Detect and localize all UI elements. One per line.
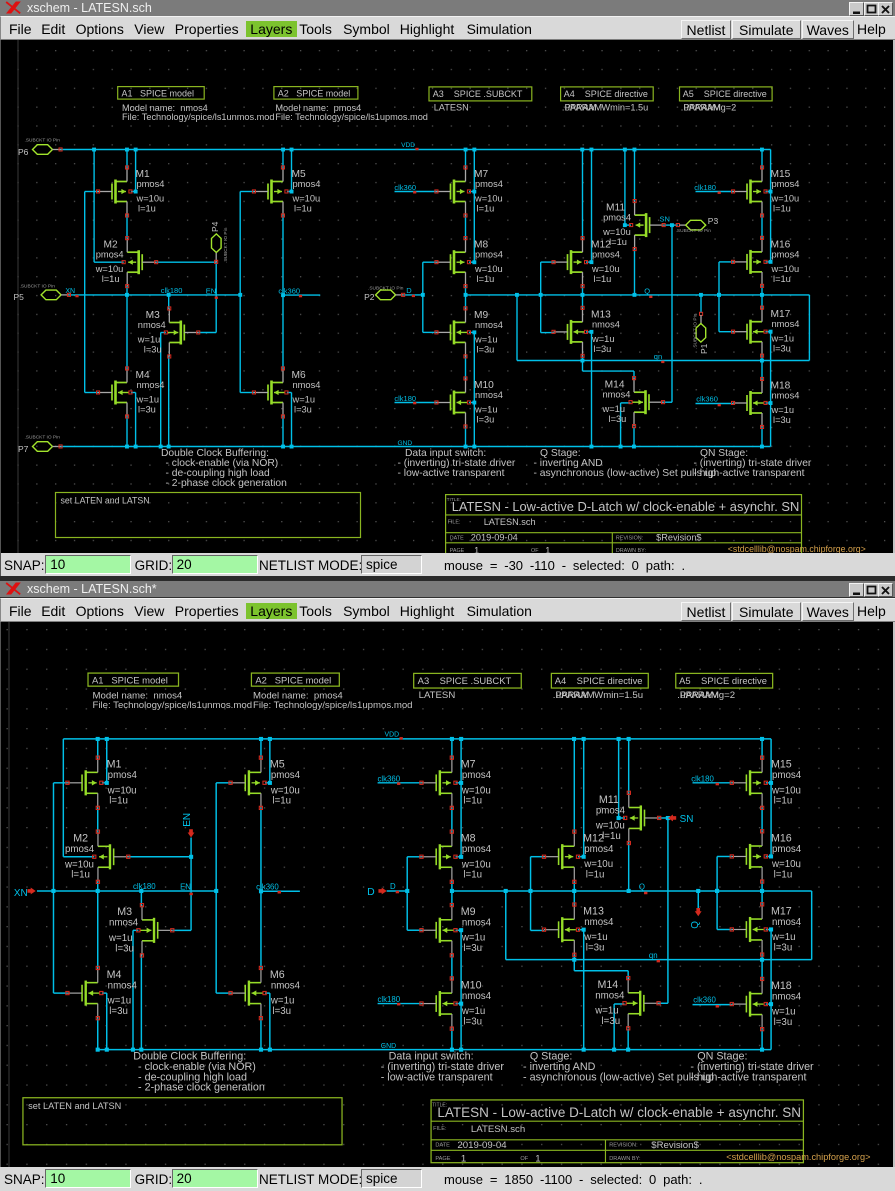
svg-text:Wmin=1.5u: Wmin=1.5u xyxy=(594,690,643,701)
svg-text:A4 SPICE directive: A4 SPICE directive xyxy=(564,89,648,99)
svg-text:l=3u: l=3u xyxy=(773,415,791,425)
svg-text:pmos4: pmos4 xyxy=(772,249,800,259)
svg-text:w=10u: w=10u xyxy=(595,820,625,831)
svg-text:l=1u: l=1u xyxy=(594,274,612,284)
svg-text:uPARAM: uPARAM xyxy=(565,103,602,113)
svg-text:.SUBCKT IO Pin: .SUBCKT IO Pin xyxy=(25,435,61,441)
svg-text:clk360: clk360 xyxy=(256,882,279,891)
svg-text:nmos4: nmos4 xyxy=(772,391,800,401)
svg-text:clk180: clk180 xyxy=(394,394,416,403)
svg-text:M8: M8 xyxy=(461,833,476,845)
svg-text:l=1u: l=1u xyxy=(463,796,482,807)
svg-text:M12: M12 xyxy=(583,833,604,845)
svg-text:File: Technology/spice/ls1upmo: File: Technology/spice/ls1upmos.mod xyxy=(275,112,428,122)
svg-text:DRAWN BY:: DRAWN BY: xyxy=(609,1156,641,1162)
svg-text:<stdcelllib@nospam.chipforge.o: <stdcelllib@nospam.chipforge.org> xyxy=(726,1152,870,1162)
svg-text:w=1u: w=1u xyxy=(474,405,497,415)
svg-text:A1 SPICE model: A1 SPICE model xyxy=(122,89,195,99)
svg-text:- high-active transparent: - high-active transparent xyxy=(690,1071,806,1083)
svg-text:.SUBCKT IO Pin: .SUBCKT IO Pin xyxy=(676,228,712,234)
svg-text:M7: M7 xyxy=(461,759,476,771)
svg-text:w=1u: w=1u xyxy=(771,405,794,415)
svg-text:l=1u: l=1u xyxy=(773,204,791,214)
svg-text:w=10u: w=10u xyxy=(270,785,300,796)
svg-text:l=3u: l=3u xyxy=(294,405,312,415)
svg-text:w=1u: w=1u xyxy=(461,1006,486,1017)
svg-text:M11: M11 xyxy=(599,794,619,806)
svg-text:.SUBCKT IO Pin: .SUBCKT IO Pin xyxy=(20,284,56,290)
svg-text:D: D xyxy=(367,887,375,898)
svg-text:M10: M10 xyxy=(461,979,482,991)
svg-text:M13: M13 xyxy=(583,906,604,918)
svg-text:l=3u: l=3u xyxy=(773,344,791,354)
svg-text:M1: M1 xyxy=(107,759,122,771)
svg-text:Q: Q xyxy=(644,287,650,296)
svg-text:l=1u: l=1u xyxy=(477,204,495,214)
svg-text:l=3u: l=3u xyxy=(115,943,134,954)
svg-text:M2: M2 xyxy=(73,833,88,845)
svg-text:nmos4: nmos4 xyxy=(772,991,802,1002)
svg-text:pmos4: pmos4 xyxy=(462,844,492,855)
svg-text:nmos4: nmos4 xyxy=(772,319,800,329)
svg-text:A2 SPICE model: A2 SPICE model xyxy=(278,89,351,99)
svg-text:A5 SPICE directive: A5 SPICE directive xyxy=(683,89,767,99)
svg-text:w=1u: w=1u xyxy=(771,1007,796,1018)
svg-text:M18: M18 xyxy=(771,980,792,992)
svg-text:l=3u: l=3u xyxy=(586,943,605,954)
svg-text:w=10u: w=10u xyxy=(461,785,491,796)
svg-text:pmos4: pmos4 xyxy=(592,250,620,260)
svg-text:pmos4: pmos4 xyxy=(108,770,138,781)
svg-text:nmos4: nmos4 xyxy=(138,320,166,330)
svg-text:- asynchronous (low-active) Se: - asynchronous (low-active) Set pulls up xyxy=(534,468,717,479)
svg-text:w=1u: w=1u xyxy=(136,395,159,405)
svg-text:l=3u: l=3u xyxy=(774,1017,793,1028)
svg-text:LATESN.sch: LATESN.sch xyxy=(471,1124,525,1135)
svg-text:- low-active transparent: - low-active transparent xyxy=(381,1071,493,1083)
svg-text:set LATEN and LATSN: set LATEN and LATSN xyxy=(61,496,150,506)
svg-text:pmos4: pmos4 xyxy=(293,179,321,189)
svg-text:l=3u: l=3u xyxy=(477,344,495,354)
svg-text:Wmin=1.5u: Wmin=1.5u xyxy=(602,103,649,113)
svg-text:P7: P7 xyxy=(18,444,29,454)
svg-text:clk180: clk180 xyxy=(161,286,183,295)
svg-text:clk360: clk360 xyxy=(377,774,400,783)
svg-text:M15: M15 xyxy=(771,759,792,771)
svg-text:pmos4: pmos4 xyxy=(137,179,165,189)
svg-text:M16: M16 xyxy=(771,832,792,844)
svg-text:w=1u: w=1u xyxy=(474,334,497,344)
svg-text:l=1u: l=1u xyxy=(294,204,312,214)
svg-text:LATESN: LATESN xyxy=(434,103,469,113)
svg-text:A5 SPICE directive: A5 SPICE directive xyxy=(679,675,767,686)
svg-text:A3 SPICE .SUBCKT: A3 SPICE .SUBCKT xyxy=(433,89,523,99)
svg-text:Q: Q xyxy=(639,883,645,892)
svg-text:1: 1 xyxy=(474,545,479,553)
svg-text:l=1u: l=1u xyxy=(272,796,291,807)
svg-text:M5: M5 xyxy=(270,759,285,771)
svg-text:nmos4: nmos4 xyxy=(592,319,620,329)
svg-text:l=1u: l=1u xyxy=(602,831,621,842)
svg-text:2019-09-04: 2019-09-04 xyxy=(457,1140,507,1151)
svg-text:clk180: clk180 xyxy=(377,995,400,1004)
svg-text:w=1u: w=1u xyxy=(583,932,608,943)
svg-text:PAGE: PAGE xyxy=(435,1156,450,1162)
svg-text:VDD: VDD xyxy=(385,731,400,738)
svg-text:l=1u: l=1u xyxy=(477,274,495,284)
svg-text:1: 1 xyxy=(545,545,550,553)
svg-text:nmos4: nmos4 xyxy=(772,917,802,928)
svg-text:l=3u: l=3u xyxy=(594,344,612,354)
svg-text:w=1u: w=1u xyxy=(771,334,794,344)
svg-text:FILE:: FILE: xyxy=(433,1126,447,1132)
svg-text:w=10u: w=10u xyxy=(771,264,800,274)
svg-text:l=3u: l=3u xyxy=(463,943,482,954)
svg-text:REVISION:: REVISION: xyxy=(616,535,643,541)
svg-text:l=1u: l=1u xyxy=(138,204,156,214)
svg-text:M4: M4 xyxy=(107,969,122,981)
svg-text:clk360: clk360 xyxy=(394,183,416,192)
svg-text:Mg=2: Mg=2 xyxy=(713,103,736,113)
svg-text:l=3u: l=3u xyxy=(609,414,627,424)
svg-text:nmos4: nmos4 xyxy=(137,380,165,390)
svg-text:w=1u: w=1u xyxy=(591,334,614,344)
svg-text:pmos4: pmos4 xyxy=(596,805,626,816)
svg-text:w=10u: w=10u xyxy=(474,264,503,274)
svg-text:M3: M3 xyxy=(117,906,132,918)
svg-text:P5: P5 xyxy=(14,292,25,302)
svg-text:w=10u: w=10u xyxy=(771,194,800,204)
svg-text:.SUBCKT IO Pin: .SUBCKT IO Pin xyxy=(223,227,229,263)
svg-text:P1: P1 xyxy=(699,343,709,354)
svg-text:uPARAM: uPARAM xyxy=(556,690,595,701)
svg-text:clk180: clk180 xyxy=(133,882,156,891)
svg-text:w=1u: w=1u xyxy=(107,996,132,1007)
svg-text:w=1u: w=1u xyxy=(137,335,160,345)
svg-text:1: 1 xyxy=(461,1153,466,1164)
svg-text:clk180: clk180 xyxy=(694,183,716,192)
svg-text:nmos4: nmos4 xyxy=(603,390,631,400)
svg-text:SN: SN xyxy=(680,814,694,825)
svg-text:.SUBCKT IO Pin: .SUBCKT IO Pin xyxy=(25,138,61,144)
svg-text:DATE: DATE xyxy=(435,1143,450,1149)
svg-text:- 2-phase clock generation: - 2-phase clock generation xyxy=(166,478,288,489)
svg-text:pmos4: pmos4 xyxy=(603,213,631,223)
svg-text:w=1u: w=1u xyxy=(292,395,315,405)
svg-text:XN: XN xyxy=(65,288,75,295)
svg-text:nmos4: nmos4 xyxy=(293,380,321,390)
svg-text:nmos4: nmos4 xyxy=(462,991,492,1002)
svg-text:l=1u: l=1u xyxy=(586,870,605,881)
svg-text:FILE:: FILE: xyxy=(448,519,461,525)
svg-text:pmos4: pmos4 xyxy=(584,844,614,855)
svg-text:clk360: clk360 xyxy=(696,395,718,404)
svg-text:l=1u: l=1u xyxy=(774,869,793,880)
svg-text:M14: M14 xyxy=(597,979,618,991)
svg-text:l=1u: l=1u xyxy=(109,796,128,807)
svg-text:A4 SPICE directive: A4 SPICE directive xyxy=(555,675,643,686)
svg-text:A2 SPICE model: A2 SPICE model xyxy=(255,674,331,685)
svg-text:M9: M9 xyxy=(461,906,476,918)
svg-text:clk180: clk180 xyxy=(691,774,714,783)
svg-text:pmos4: pmos4 xyxy=(65,844,95,855)
svg-text:l=3u: l=3u xyxy=(601,1016,620,1027)
svg-text:nmos4: nmos4 xyxy=(475,320,503,330)
svg-text:VDD: VDD xyxy=(401,142,415,149)
svg-text:pmos4: pmos4 xyxy=(475,179,503,189)
svg-text:l=3u: l=3u xyxy=(109,1006,128,1017)
svg-text:nmos4: nmos4 xyxy=(584,917,614,928)
svg-text:clk360: clk360 xyxy=(693,996,716,1005)
svg-text:w=10u: w=10u xyxy=(292,194,321,204)
svg-text:EN: EN xyxy=(180,883,191,892)
svg-text:DATE: DATE xyxy=(450,535,464,541)
svg-text:w=10u: w=10u xyxy=(107,785,137,796)
svg-text:w=1u: w=1u xyxy=(461,933,486,944)
svg-text:A3 SPICE .SUBCKT: A3 SPICE .SUBCKT xyxy=(418,675,512,686)
svg-text:w=1u: w=1u xyxy=(771,932,796,943)
svg-text:pmos4: pmos4 xyxy=(772,179,800,189)
svg-text:File: Technology/spice/ls1unmo: File: Technology/spice/ls1unmos.mod xyxy=(122,112,275,122)
svg-text:nmos4: nmos4 xyxy=(595,991,625,1002)
svg-text:pmos4: pmos4 xyxy=(475,250,503,260)
svg-text:P2: P2 xyxy=(364,292,375,302)
svg-text:l=3u: l=3u xyxy=(138,405,156,415)
svg-text:M6: M6 xyxy=(270,969,285,981)
svg-text:w=1u: w=1u xyxy=(594,1006,619,1017)
svg-text:w=10u: w=10u xyxy=(591,264,620,274)
svg-text:w=1u: w=1u xyxy=(602,404,625,414)
svg-text:LATESN - Low-active D-Latch w/: LATESN - Low-active D-Latch w/ clock-ena… xyxy=(437,1105,801,1120)
svg-text:LATESN.sch: LATESN.sch xyxy=(484,517,536,527)
svg-text:qn: qn xyxy=(649,951,658,960)
svg-text:w=10u: w=10u xyxy=(461,859,491,870)
svg-text:M17: M17 xyxy=(771,905,792,917)
svg-text:XN: XN xyxy=(14,888,28,899)
svg-text:EN: EN xyxy=(182,813,193,827)
svg-text:- high-active transparent: - high-active transparent xyxy=(694,468,805,479)
svg-text:A1 SPICE model: A1 SPICE model xyxy=(92,674,168,685)
svg-text:.SUBCKT IO Pin: .SUBCKT IO Pin xyxy=(692,313,698,349)
svg-text:Mg=2: Mg=2 xyxy=(711,690,735,701)
svg-text:l=1u: l=1u xyxy=(463,870,482,881)
svg-text:nmos4: nmos4 xyxy=(108,980,138,991)
svg-text:D: D xyxy=(406,286,412,295)
svg-text:- asynchronous (low-active) Se: - asynchronous (low-active) Set pulls up xyxy=(523,1071,714,1083)
svg-text:$Revision$: $Revision$ xyxy=(656,533,701,543)
svg-text:File: Technology/spice/ls1upmo: File: Technology/spice/ls1upmos.mod xyxy=(253,700,413,711)
svg-text:- 2-phase clock generation: - 2-phase clock generation xyxy=(138,1082,265,1094)
svg-text:set LATEN and LATSN: set LATEN and LATSN xyxy=(28,1101,121,1111)
svg-text:<stdcelllib@nospam.chipforge.o: <stdcelllib@nospam.chipforge.org> xyxy=(728,544,866,553)
svg-text:l=3u: l=3u xyxy=(477,415,495,425)
svg-text:w=1u: w=1u xyxy=(108,933,133,944)
svg-text:nmos4: nmos4 xyxy=(475,390,503,400)
svg-text:REVISION:: REVISION: xyxy=(609,1143,638,1149)
svg-text:1: 1 xyxy=(535,1153,540,1164)
svg-text:File: Technology/spice/ls1unmo: File: Technology/spice/ls1unmos.mod xyxy=(93,700,253,711)
svg-text:P4: P4 xyxy=(210,221,220,232)
svg-text:P6: P6 xyxy=(18,147,29,157)
svg-text:w=10u: w=10u xyxy=(95,264,124,274)
svg-text:GND: GND xyxy=(381,1043,396,1050)
svg-text:pmos4: pmos4 xyxy=(772,844,802,855)
svg-text:$Revision$: $Revision$ xyxy=(651,1140,699,1151)
svg-text:l=1u: l=1u xyxy=(773,274,791,284)
svg-text:LATESN: LATESN xyxy=(419,690,456,701)
svg-text:w=10u: w=10u xyxy=(602,227,631,237)
svg-text:w=10u: w=10u xyxy=(136,194,165,204)
svg-text:l=1u: l=1u xyxy=(102,274,120,284)
svg-text:l=1u: l=1u xyxy=(609,237,627,247)
svg-text:w=10u: w=10u xyxy=(64,859,94,870)
svg-text:pmos4: pmos4 xyxy=(772,770,802,781)
svg-text:- low-active transparent: - low-active transparent xyxy=(398,468,505,479)
svg-text:P3: P3 xyxy=(708,216,719,226)
svg-text:GND: GND xyxy=(398,440,413,447)
svg-text:l=1u: l=1u xyxy=(774,796,793,807)
svg-text:l=1u: l=1u xyxy=(71,870,90,881)
svg-text:nmos4: nmos4 xyxy=(271,980,301,991)
svg-text:w=1u: w=1u xyxy=(270,996,295,1007)
svg-text:SN: SN xyxy=(660,215,670,224)
svg-text:nmos4: nmos4 xyxy=(462,918,492,929)
svg-text:pmos4: pmos4 xyxy=(271,770,301,781)
svg-text:EN: EN xyxy=(206,287,216,296)
svg-text:Q: Q xyxy=(690,921,701,929)
svg-text:nmos4: nmos4 xyxy=(109,918,139,929)
svg-text:l=3u: l=3u xyxy=(463,1016,482,1027)
svg-text:OF: OF xyxy=(520,1156,528,1162)
svg-text:LATESN - Low-active D-Latch w/: LATESN - Low-active D-Latch w/ clock-ena… xyxy=(452,499,800,514)
svg-text:2019-09-04: 2019-09-04 xyxy=(471,533,518,543)
svg-text:w=10u: w=10u xyxy=(474,194,503,204)
svg-text:w=10u: w=10u xyxy=(771,785,801,796)
svg-text:qn: qn xyxy=(654,352,662,361)
svg-text:l=3u: l=3u xyxy=(272,1006,291,1017)
svg-text:D: D xyxy=(390,882,396,891)
svg-text:w=10u: w=10u xyxy=(771,859,801,870)
svg-text:pmos4: pmos4 xyxy=(96,250,124,260)
svg-text:w=10u: w=10u xyxy=(583,859,613,870)
svg-text:clk360: clk360 xyxy=(278,286,300,295)
svg-text:l=3u: l=3u xyxy=(144,345,162,355)
svg-text:pmos4: pmos4 xyxy=(462,770,492,781)
svg-text:l=3u: l=3u xyxy=(774,942,793,953)
